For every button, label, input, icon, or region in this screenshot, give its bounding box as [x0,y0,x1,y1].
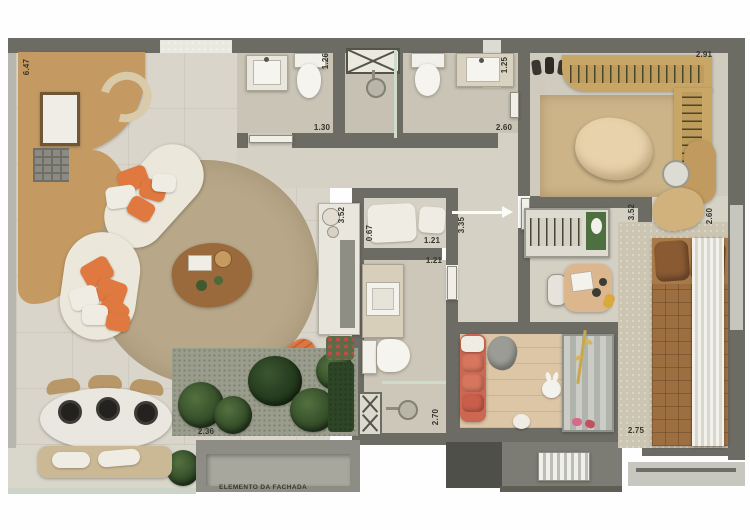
niche-top-wall [352,188,458,198]
desk-papers [570,271,594,293]
towel-ladder [358,392,382,436]
shower3-head [398,400,418,420]
dim-bath2-width: 1.25 [500,51,510,79]
hall-floor [237,148,518,188]
service-box [446,442,502,488]
place-setting [96,397,120,421]
shoe-pair [531,59,542,75]
coffee-table-books [188,255,212,271]
bath2-door-leaf [510,92,519,118]
daybed-pillow-small [418,206,446,234]
bed-throw [692,238,724,446]
dim-counter-length: 3.52 [337,201,347,229]
left-glass-wall [8,53,16,448]
kids-wardrobe [562,334,614,432]
utensil-rack [33,148,69,182]
facade-label: ELEMENTO DA FACHADA [219,484,307,491]
wardrobe-top-arm [562,55,712,91]
facade-inner [206,454,350,486]
coffee-table-plant [196,280,207,291]
green-wall [328,362,354,432]
place-setting [134,401,158,425]
bath1-faucet [264,57,269,62]
bath2-toilet-bowl [415,64,440,96]
shower3-shelf [382,381,446,384]
master-window [730,205,743,330]
dim-niche-depth: 0.67 [365,219,375,247]
kids-sofa-cushion [462,374,484,392]
bath1-door-leaf [249,135,293,143]
bath2-door-opening [498,133,518,148]
sofa-pillow [151,173,176,193]
floor-plan: ELEMENTO DA FACHADA [0,0,750,530]
desk-cup [592,288,601,297]
dim-hall-width: 1.21 [420,256,448,266]
bench-pillow [52,452,90,468]
flower-planter [326,336,354,360]
coffee-table-tray [214,250,232,268]
toy-on-shelf [591,218,602,234]
bath2-faucet [479,58,484,63]
bath1-toilet-bowl [297,64,321,98]
dining-chair-back [88,375,122,389]
shower-glass [394,50,397,138]
kids-top-wall [446,322,642,334]
pink-slipper [572,418,582,426]
coffee-table-plant [214,276,223,285]
dim-master-width: 2.60 [705,202,715,230]
entry-arrow-head [502,206,513,218]
bath1-basin [253,60,281,85]
kids-sofa-cushion [462,354,484,372]
dim-bath1-length: 1.30 [308,123,336,133]
dim-bath1-width: 1.26 [321,47,331,75]
bath3-door-leaf [447,266,457,300]
entry-wall-upper [518,48,530,196]
dim-kids-room-width: 2.75 [622,426,650,436]
kids-sofa-pillow [461,336,484,352]
desk-cup [599,278,607,286]
dim-closet-width: 2.91 [690,50,718,60]
shoe-pair [545,57,554,74]
rabbit-plush-body [542,380,561,398]
small-plush [513,414,530,429]
round-mirror [662,160,690,188]
dim-office-length: 3.52 [627,198,637,226]
oven [40,92,80,146]
dim-entry-hall: 3.35 [457,211,467,239]
shoe-pair-light [536,80,545,93]
office-wardrobe [524,208,610,258]
bottom-right-ledge [628,462,745,486]
island-inset [340,240,355,328]
kids-sofa-cushion [462,394,484,412]
dim-kitchen-wall: 6.47 [22,53,32,81]
dim-niche-width: 1.21 [418,236,446,246]
bath3-toilet-tank [362,340,377,374]
tech-balcony-edge [500,486,622,492]
dim-terrace-width: 2.36 [192,427,220,437]
dim-bath3-length: 2.70 [431,403,441,431]
bottom-right-ledge-line [636,468,736,472]
sofa-pillow [82,305,108,325]
top-window [160,40,232,53]
terrace-edge [8,488,196,494]
shower-head [366,78,386,98]
bath3-toilet-bowl [377,339,410,372]
ac-condenser [538,452,590,481]
dim-bath2-length: 2.60 [490,123,518,133]
bed-pillow [654,240,691,282]
place-setting [58,400,82,424]
kids-left-wall [446,334,460,442]
bath3-basin-inner [372,288,394,310]
